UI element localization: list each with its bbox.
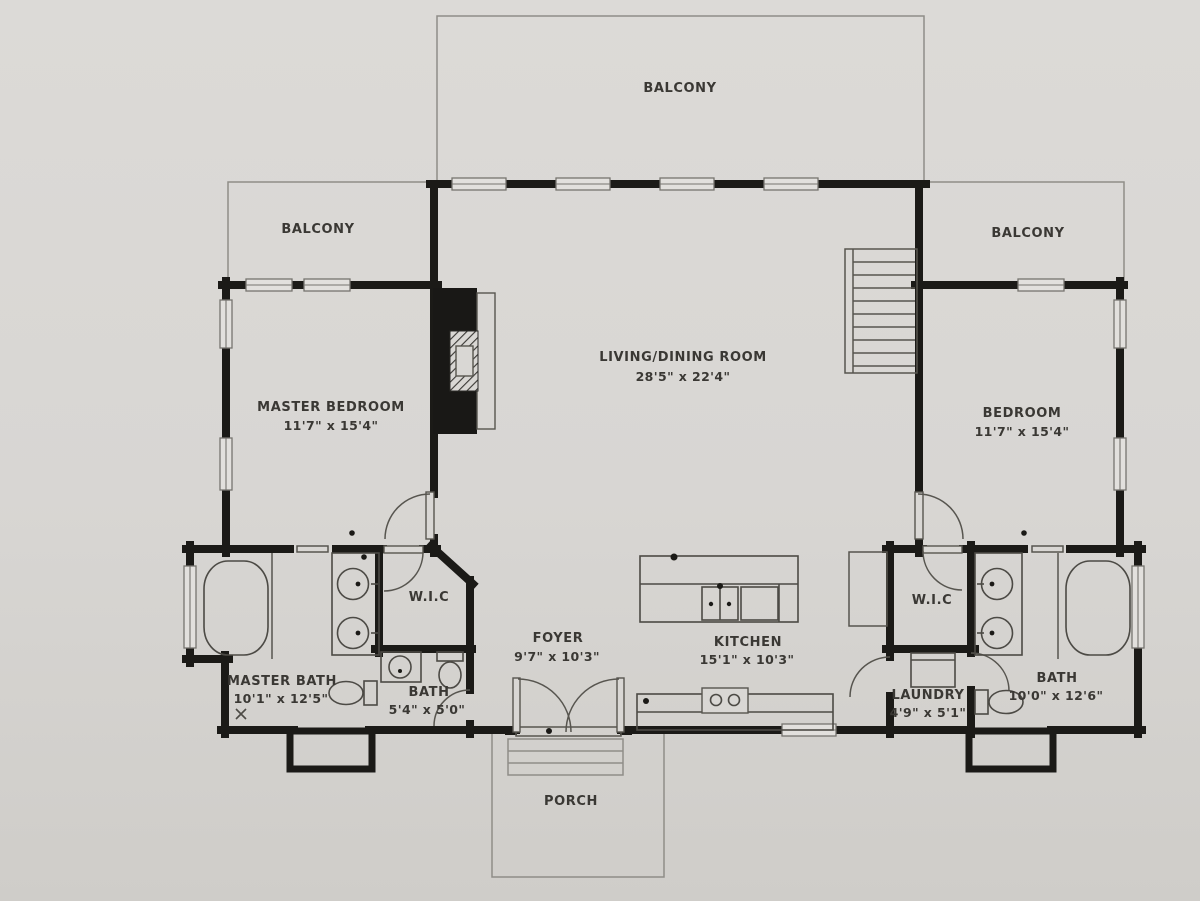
closet-box-right [969,731,1053,769]
floor-plan-drawing: BALCONY BALCONY BALCONY LIVING/DINING RO… [0,0,1200,901]
door-wic-left [384,546,423,591]
window [1018,279,1064,291]
window [556,178,610,190]
balcony-top-outline [437,16,924,182]
windows [184,178,1144,736]
small-bath-fixtures [381,652,463,688]
window [220,300,232,348]
label-balcony-right: BALCONY [991,226,1064,241]
label-foyer: FOYER [533,631,584,646]
label-balcony-left: BALCONY [281,222,354,237]
label-master-bedroom: MASTER BEDROOM [257,400,405,415]
sink-icon [381,652,421,682]
kitchen-island [640,554,798,623]
double-vanity-icon [975,553,1022,655]
toilet-icon [437,652,463,688]
closet-box-left [290,731,372,769]
floor-plan-page: BALCONY BALCONY BALCONY LIVING/DINING RO… [0,0,1200,901]
label-balcony-top: BALCONY [643,81,716,96]
label-bath-small: BATH [408,685,449,700]
label-bath-right-dims: 10'0" x 12'6" [1009,688,1104,703]
window [1132,566,1144,648]
label-laundry: LAUNDRY [891,688,964,703]
double-vanity-icon [332,553,379,655]
label-kitchen: KITCHEN [714,635,782,650]
window [764,178,818,190]
island-sink-icon [702,583,738,620]
label-living-dining-dims: 28'5" x 22'4" [636,369,731,384]
window [246,279,292,291]
window [660,178,714,190]
window [220,438,232,490]
pocket-door-master-bath [294,544,332,554]
stove-icon [702,688,748,713]
door-wic-right [923,546,962,590]
door-bedroom [915,492,963,539]
fireplace [433,288,495,434]
staircase [845,249,917,373]
label-bedroom: BEDROOM [983,406,1062,421]
label-foyer-dims: 9'7" x 10'3" [514,649,600,664]
label-kitchen-dims: 15'1" x 10'3" [700,652,795,667]
label-master-bedroom-dims: 11'7" x 15'4" [284,418,379,433]
bathtub-icon [1066,561,1130,655]
pocket-door-bath-right [1028,544,1066,554]
label-bath-right: BATH [1036,671,1077,686]
dishwasher-icon [741,587,778,620]
door-master-bedroom [385,492,434,539]
window [304,279,350,291]
label-wic-left: W.I.C [409,590,450,605]
window [184,566,196,648]
label-master-bath-dims: 10'1" x 12'5" [234,691,329,706]
shower-head-icon [236,709,246,719]
entry-double-door [513,678,624,736]
window [1114,438,1126,490]
door-bath-right [971,653,1009,691]
label-bath-small-dims: 5'4" x 5'0" [389,702,466,717]
label-porch: PORCH [544,794,598,809]
door-laundry [850,657,890,697]
window [1114,300,1126,348]
pantry-shaft [849,552,887,626]
label-master-bath: MASTER BATH [227,674,337,689]
label-wic-right: W.I.C [912,593,953,608]
washer-dryer-icon [911,653,955,687]
bathtub-icon [204,561,268,655]
window [452,178,506,190]
label-laundry-dims: 4'9" x 5'1" [890,705,967,720]
label-bedroom-dims: 11'7" x 15'4" [975,424,1070,439]
label-living-dining: LIVING/DINING ROOM [599,350,767,365]
